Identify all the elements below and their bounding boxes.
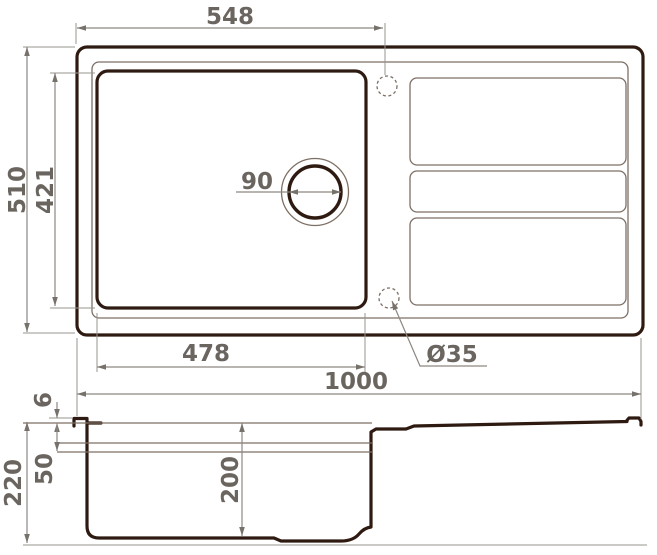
drainboard-rib-2 [410, 171, 626, 212]
dim-ledge-depth-label: 50 [32, 453, 58, 485]
drainboard-rib-3 [410, 218, 626, 305]
dimension-bowl-depth: 200 [218, 423, 245, 536]
bowl-outline [97, 71, 366, 308]
dim-bowl-length-label: 478 [182, 341, 230, 367]
dim-tap-hole-label: Ø35 [426, 342, 478, 368]
dim-top-width-label: 548 [206, 4, 254, 30]
tap-hole-top [377, 76, 397, 96]
dimension-top-width: 548 [76, 4, 385, 75]
plan-view [77, 47, 643, 335]
dimension-ledge-depth: 50 [32, 423, 60, 485]
dim-overall-length-label: 1000 [324, 369, 388, 395]
sink-inner-rim [92, 62, 628, 318]
drawing-svg: 548 510 421 90 [0, 0, 657, 555]
sink-outer-outline [77, 47, 643, 335]
dim-drain-label: 90 [241, 169, 273, 195]
dim-bowl-depth-label: 200 [218, 456, 244, 504]
dim-rim-height-label: 6 [31, 392, 57, 408]
dimension-bowl-width: 421 [33, 73, 95, 308]
side-view [23, 418, 647, 545]
dim-bowl-width-label: 421 [33, 166, 59, 214]
dim-overall-width-label: 510 [5, 166, 31, 214]
dimension-rim-height: 6 [31, 392, 60, 432]
drainboard-rib-1 [410, 78, 626, 165]
dimension-total-depth: 220 [1, 422, 30, 543]
dimension-overall-length: 1000 [77, 338, 641, 419]
tap-hole-bottom [379, 288, 399, 308]
dim-total-depth-label: 220 [1, 459, 27, 507]
dimension-bowl-length: 478 [97, 313, 365, 372]
sink-technical-drawing: 548 510 421 90 [0, 0, 657, 555]
side-profile [74, 418, 641, 541]
